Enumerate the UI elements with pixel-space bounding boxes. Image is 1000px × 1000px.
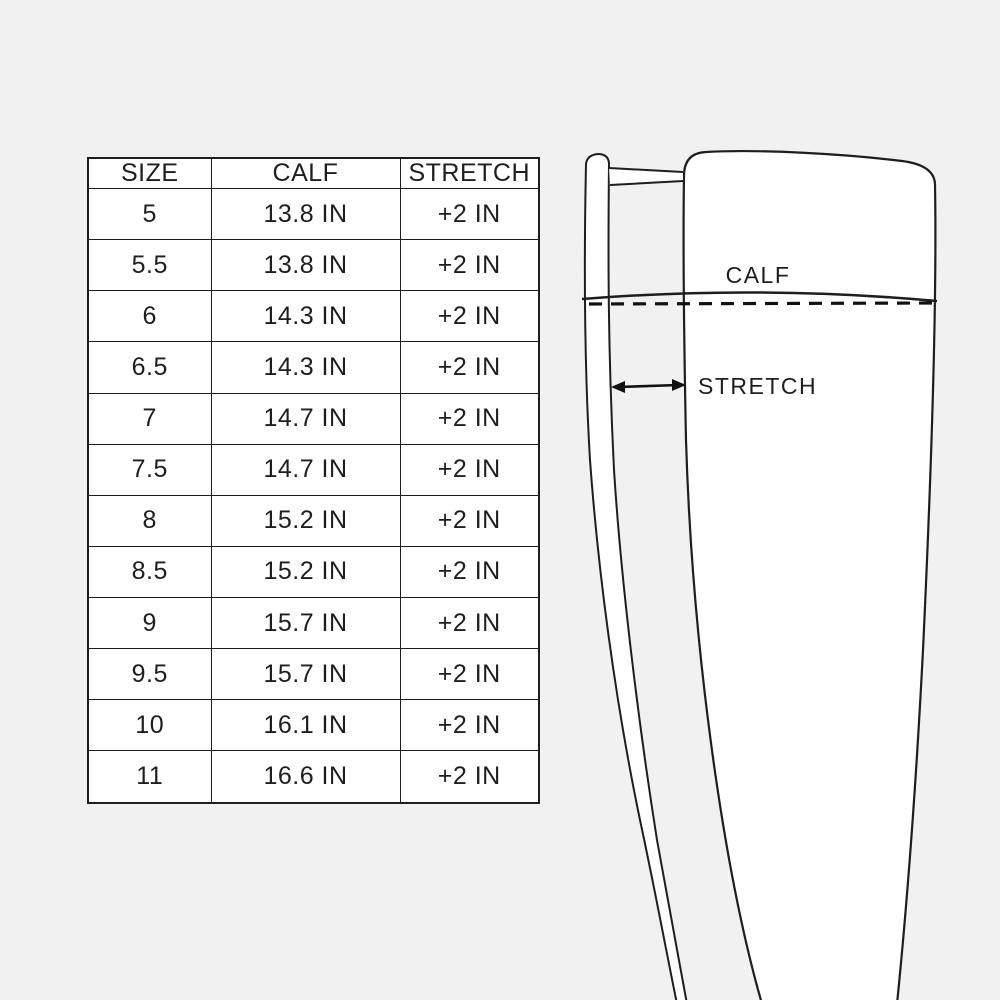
- boot-back-strip: [585, 154, 687, 1000]
- stretch-label: STRETCH: [698, 373, 817, 399]
- boot-shaft-outline: [684, 151, 936, 1000]
- calf-label: CALF: [726, 262, 791, 288]
- size-guide-image: SIZECALFSTRETCH 513.8 IN+2 IN5.513.8 IN+…: [0, 0, 1000, 1000]
- stretch-arrow: [611, 379, 686, 393]
- stretch-arrowhead-left: [611, 381, 625, 393]
- boot-illustration: CALF STRETCH: [0, 0, 1000, 1000]
